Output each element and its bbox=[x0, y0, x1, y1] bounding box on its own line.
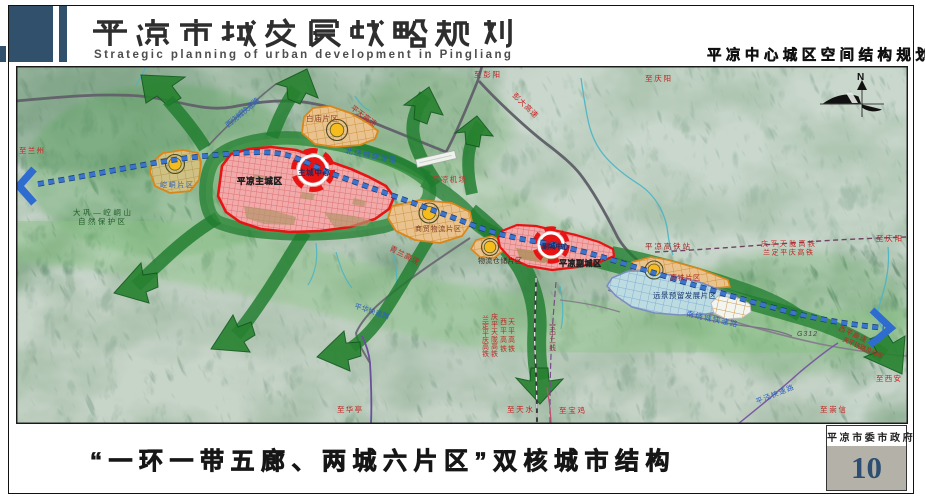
svg-text:N: N bbox=[857, 72, 864, 83]
svg-text:至崇信: 至崇信 bbox=[820, 404, 847, 414]
svg-text:平凉高铁站: 平凉高铁站 bbox=[645, 241, 691, 251]
svg-text:商贸物流片区: 商贸物流片区 bbox=[415, 224, 461, 233]
svg-text:副城中心: 副城中心 bbox=[542, 242, 569, 251]
svg-text:至庆阳: 至庆阳 bbox=[876, 233, 902, 243]
svg-text:至彭阳: 至彭阳 bbox=[474, 69, 500, 79]
svg-text:平凉主城区: 平凉主城区 bbox=[237, 176, 282, 186]
svg-text:远景预留发展片区: 远景预留发展片区 bbox=[653, 290, 717, 300]
svg-text:物流仓储片区: 物流仓储片区 bbox=[478, 256, 522, 265]
svg-text:高铁片区: 高铁片区 bbox=[670, 273, 700, 282]
svg-text:至西安: 至西安 bbox=[876, 373, 902, 383]
svg-text:至华亭: 至华亭 bbox=[337, 404, 363, 414]
svg-text:白庙片区: 白庙片区 bbox=[306, 113, 339, 123]
svg-text:至宝鸡: 至宝鸡 bbox=[559, 405, 585, 415]
svg-text:平凉副城区: 平凉副城区 bbox=[559, 258, 601, 268]
svg-text:崆峒片区: 崆峒片区 bbox=[160, 180, 193, 189]
svg-text:至兰州: 至兰州 bbox=[19, 145, 44, 155]
svg-text:至天水: 至天水 bbox=[507, 404, 534, 414]
svg-text:平凉机场: 平凉机场 bbox=[432, 174, 467, 184]
svg-text:主城中心: 主城中心 bbox=[298, 167, 331, 177]
svg-text:G312: G312 bbox=[797, 331, 817, 338]
svg-text:至庆阳: 至庆阳 bbox=[645, 73, 671, 83]
svg-text:自然保护区: 自然保护区 bbox=[78, 216, 126, 226]
